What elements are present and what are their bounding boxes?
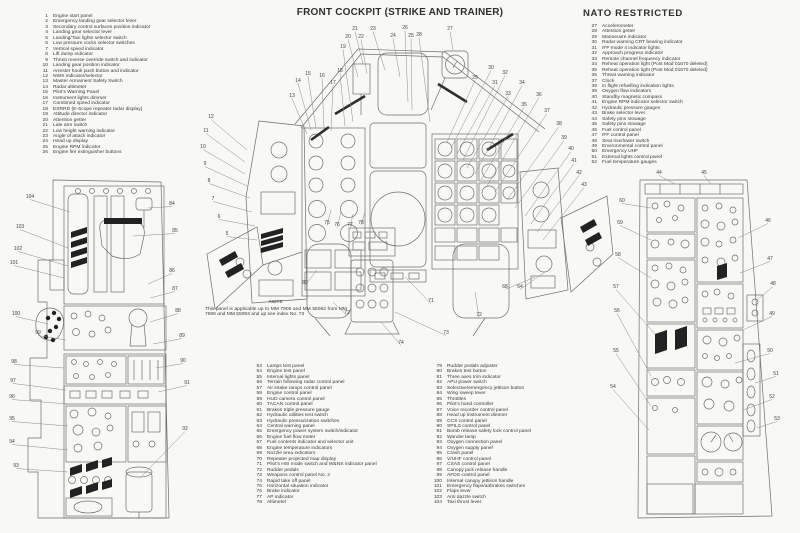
callout-number: 9 [204, 161, 207, 167]
callout-number: 14 [295, 78, 301, 84]
callout-number: 86 [169, 268, 175, 274]
callout-number: 87 [172, 286, 178, 292]
callout-leader-line [738, 224, 768, 239]
callout-leader-line [757, 287, 773, 301]
callout-number: 52 [769, 394, 775, 400]
callout-leader-line [447, 81, 475, 143]
callout-leader-line [405, 277, 431, 304]
classification-marking: NATO RESTRICTED [583, 8, 683, 19]
callout-number: 100 [12, 311, 21, 317]
callout-number: 16 [319, 73, 325, 79]
callout-leader-line [525, 152, 571, 217]
callout-leader-line [156, 364, 183, 369]
callout-number: 50 [767, 348, 773, 354]
callout-leader-line [361, 40, 367, 75]
callout-number: 6 [218, 214, 221, 220]
callout-leader-line [537, 176, 579, 233]
callout-number: 22 [358, 34, 364, 40]
legend-item-label: Taxi thrust lever [447, 500, 481, 505]
callout-number: 72 [476, 312, 482, 318]
callout-leader-line [209, 184, 250, 199]
callout-leader-line [616, 354, 651, 407]
left-console-diagram: 1041031021011009998979695949384858687888… [8, 172, 203, 527]
callout-number: 39 [561, 135, 567, 141]
callout-leader-line [141, 432, 185, 478]
callout-leader-line [411, 39, 412, 111]
manual-page: { "page": { "title": "FRONT COCKPIT (STR… [0, 0, 800, 533]
callout-number: 24 [390, 33, 396, 39]
callout-number: 19 [340, 44, 346, 50]
callout-number: 77 [347, 222, 353, 228]
legend-item: 78Altimeter [248, 500, 426, 505]
callout-number: 30 [488, 65, 494, 71]
callout-leader-line [620, 226, 651, 241]
callout-number: 60 [619, 198, 625, 204]
callout-number: 25 [408, 33, 414, 39]
callout-number: 89 [179, 333, 185, 339]
legend-item-number: 78 [248, 500, 262, 505]
callout-number: 58 [615, 252, 621, 258]
callout-number: 46 [765, 218, 771, 224]
callout-number: 44 [656, 170, 662, 176]
callout-number: 98 [11, 359, 17, 365]
callout-leader-line [20, 230, 68, 249]
callout-number: 18 [337, 68, 343, 74]
callout-leader-line [340, 74, 345, 127]
callout-number: 94 [9, 439, 15, 445]
callout-number: 41 [571, 158, 577, 164]
hatched-panels [219, 219, 602, 278]
callout-leader-line [520, 272, 545, 290]
callout-leader-line [308, 77, 316, 129]
callout-number: 31 [492, 80, 498, 86]
callout-number: 43 [581, 182, 587, 188]
callout-leader-line [481, 108, 524, 181]
callout-number: 34 [519, 80, 525, 86]
callout-number: 96 [9, 394, 15, 400]
callout-leader-line [450, 32, 453, 51]
callout-leader-line [153, 339, 182, 345]
callout-number: 91 [184, 380, 190, 386]
callout-number: 54 [610, 384, 616, 390]
callout-number: 76 [334, 222, 340, 228]
callout-number: 29 [472, 75, 478, 81]
callout-leader-line [292, 99, 307, 135]
callout-number: 57 [613, 284, 619, 290]
callout-number: 33 [505, 91, 511, 97]
callout-leader-line [740, 262, 770, 274]
callout-leader-line [331, 86, 333, 132]
callout-leader-line [12, 445, 68, 451]
callout-number: 13 [289, 93, 295, 99]
callout-number: 37 [544, 108, 550, 114]
callout-leader-line [467, 97, 508, 169]
callout-leader-line [487, 98, 539, 187]
callout-number: 55 [613, 348, 619, 354]
callout-number: 47 [767, 256, 773, 262]
callout-leader-line [393, 39, 400, 78]
callout-number: 17 [330, 80, 336, 86]
legend-column-2: 27Accelerometer28Attention getter29Manoe… [583, 24, 795, 166]
callout-leader-line [133, 234, 175, 237]
callout-number: 99 [35, 330, 41, 336]
callout-number: 49 [769, 311, 775, 317]
callout-number: 12 [208, 114, 214, 120]
callout-number: 23 [370, 26, 376, 32]
callout-leader-line [613, 390, 649, 431]
legend-item: 104Taxi thrust lever [428, 500, 596, 505]
callout-leader-line [203, 150, 245, 175]
callout-number: 84 [169, 201, 175, 207]
callout-number: 15 [305, 71, 311, 77]
callout-number: 103 [16, 224, 25, 230]
cockpit-line-art [207, 49, 613, 336]
callout-number: 90 [180, 358, 186, 364]
callout-number: 26 [402, 25, 408, 31]
callout-leader-line [373, 32, 385, 71]
legend-item-label: Altimeter [267, 500, 286, 505]
applicability-note: NOTE This panel is applicable up to MM 7… [205, 300, 347, 318]
callout-leader-line [457, 86, 495, 155]
callout-leader-line [205, 167, 247, 187]
callout-leader-line [18, 252, 68, 267]
callout-number: 36 [536, 92, 542, 98]
callout-leader-line [743, 400, 772, 411]
callout-number: 10 [200, 144, 206, 150]
callout-number: 59 [617, 220, 623, 226]
callout-number: 95 [9, 416, 15, 422]
callout-number: 38 [556, 121, 562, 127]
callout-leader-line [395, 312, 446, 336]
callout-number: 27 [447, 26, 453, 32]
callout-leader-line [13, 384, 66, 391]
callout-number: 56 [614, 308, 620, 314]
page-title: FRONT COCKPIT (STRIKE AND TRAINER) [240, 7, 560, 18]
note-heading: NOTE [205, 300, 347, 306]
callout-leader-line [219, 220, 255, 227]
left-console-line-art [28, 180, 169, 518]
right-console-hatch [655, 263, 727, 354]
callout-number: 93 [13, 463, 19, 469]
callout-leader-line [419, 38, 430, 123]
legend-item-number: 104 [428, 500, 442, 505]
callout-number: 7 [212, 196, 215, 202]
callout-leader-line [227, 237, 257, 241]
callout-leader-line [616, 290, 655, 335]
callout-number: 48 [770, 281, 776, 287]
callout-number: 104 [26, 194, 35, 200]
callout-number: 73 [443, 330, 449, 336]
note-text: This panel is applicable up to MM 7905 a… [205, 307, 347, 318]
legend-column-3: 53Lamps test panel54Engine test panel55I… [248, 364, 426, 506]
legend-item-label: Fuel temperature gauges [602, 160, 657, 165]
callout-number: 8 [208, 178, 211, 184]
callout-number: 32 [502, 70, 508, 76]
callout-number: 21 [352, 26, 358, 32]
callout-leader-line [755, 377, 776, 384]
callout-number: 101 [10, 260, 19, 266]
callout-number: 20 [345, 34, 351, 40]
callout-leader-line [16, 469, 68, 473]
callout-leader-line [206, 134, 245, 163]
callout-number: 45 [701, 170, 707, 176]
callout-number: 11 [203, 128, 208, 134]
callout-number: 28 [416, 32, 422, 38]
callout-leader-line [12, 422, 68, 427]
right-console-diagram: 4445464748495051525360595857565554 [605, 168, 795, 528]
callout-leader-line [158, 386, 187, 393]
callout-number: 74 [398, 340, 404, 346]
legend-item-label: Engine fire extinguisher buttons [53, 150, 122, 155]
callout-number: 71 [428, 298, 434, 304]
callout-number: 53 [774, 416, 780, 422]
legend-item-number: 26 [34, 150, 48, 155]
callout-leader-line [148, 274, 172, 285]
callout-number: 92 [182, 426, 188, 432]
callout-leader-line [14, 365, 64, 369]
callout-number: 64 [517, 284, 523, 290]
callout-number: 5 [226, 231, 229, 237]
callout-number: 102 [14, 246, 23, 252]
callout-leader-line [16, 317, 48, 325]
legend-column-4: 79Rudder pedals adjuster80Brakes test bu… [428, 364, 596, 506]
callout-number: 42 [576, 170, 582, 176]
callout-leader-line [322, 79, 324, 130]
callout-leader-line [617, 314, 651, 377]
callout-number: 40 [568, 146, 574, 152]
callout-leader-line [150, 292, 175, 299]
callout-number: 88 [175, 308, 181, 314]
callout-number: 75 [324, 220, 330, 226]
callout-number: 85 [172, 228, 178, 234]
callout-leader-line [14, 266, 64, 279]
callout-number: 68 [502, 284, 508, 290]
callout-number: 80 [302, 280, 308, 286]
callout-leader-line [618, 258, 651, 279]
callout-number: 97 [10, 378, 16, 384]
callout-number: 78 [358, 220, 364, 226]
callout-leader-line [211, 120, 247, 151]
legend-item: 52Fuel temperature gauges [583, 160, 795, 165]
callout-leader-line [405, 31, 408, 103]
callout-number: 35 [521, 102, 527, 108]
callout-number: 51 [773, 371, 779, 377]
